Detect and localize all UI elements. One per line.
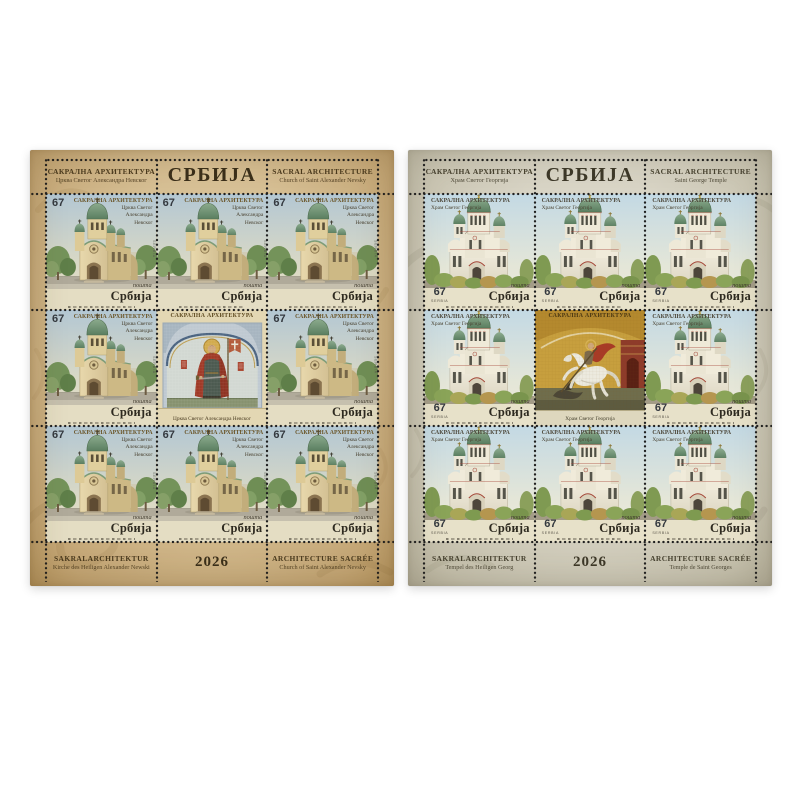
stamp-subject: Црква Светог Александра Невског	[74, 205, 153, 227]
footer-french-subtitle: Temple de Saint Georges	[670, 564, 732, 571]
stamp-microprint	[289, 306, 355, 308]
stamp-series-block: САКРАЛНА АРХИТЕКТУРА Црква Светог Алекса…	[74, 314, 153, 343]
stamp-microprint	[667, 422, 733, 424]
stamp-denomination-block: 67 SERBIA	[431, 287, 448, 303]
stamp-denomination: 67	[431, 519, 448, 530]
stamp-country-block: пошта Србија	[710, 398, 751, 420]
stamp-subject: Храм Светог Георгија	[431, 321, 510, 328]
stamp-subject-line: Црква Светог	[74, 205, 153, 212]
stamp-alexander-nevsky: 67 САКРАЛНА АРХИТЕКТУРА Црква Светог Але…	[267, 310, 378, 426]
stamp-post-label: пошта	[599, 514, 640, 521]
header-serbian-title: САКРАЛНА АРХИТЕКТУРА	[426, 167, 534, 176]
stamp-subject-line: Невског	[184, 220, 263, 227]
stamp-alexander-nevsky: 67 САКРАЛНА АРХИТЕКТУРА Црква Светог Але…	[157, 194, 268, 310]
stamp-subject-line: Невског	[74, 220, 153, 227]
stamp-saint-george-temple: САКРАЛНА АРХИТЕКТУРА Храм Светог Георгиј…	[535, 426, 646, 542]
stamp-subject-line: Црква Светог	[295, 437, 374, 444]
stamp-subject-line: Александра	[74, 444, 153, 451]
stamp-series-title: САКРАЛНА АРХИТЕКТУРА	[295, 314, 374, 320]
stamp-denomination-block: 67 SERBIA	[431, 519, 448, 535]
stamp-saint-george-temple: САКРАЛНА АРХИТЕКТУРА Храм Светог Георгиј…	[424, 426, 535, 542]
stamp-country-latin-vertical: SERBIA	[373, 356, 377, 374]
stamp-post-label: пошта	[221, 514, 262, 521]
footer-french-block: ARCHITECTURE SACRÉE Temple de Saint Geor…	[645, 543, 756, 581]
stamp-alexander-nevsky: 67 САКРАЛНА АРХИТЕКТУРА Црква Светог Але…	[46, 426, 157, 542]
stamp-saint-george-temple: САКРАЛНА АРХИТЕКТУРА Храм Светог Георгиј…	[424, 310, 535, 426]
stamp-microprint	[557, 538, 623, 540]
stamp-denomination-block: 67 SERBIA	[652, 287, 669, 303]
stamp-denomination: 67	[52, 314, 64, 325]
stamp-subject-line: Храм Светог Георгија	[431, 437, 510, 444]
country-name: СРБИЈА	[546, 164, 635, 187]
stamp-denomination: 67	[652, 287, 669, 298]
stamp-subject: Црква Светог Александра Невског	[74, 321, 153, 343]
vignette-caption: Храм Светог Георгија	[535, 416, 646, 422]
stamp-country-name: Србија	[599, 289, 640, 304]
stamp-country-name: Србија	[111, 521, 152, 536]
stamp-country-block: пошта Србија	[599, 514, 640, 536]
stamp-microprint	[446, 422, 512, 424]
stamp-country-block: пошта Србија	[489, 398, 530, 420]
stamp-denomination-block: 67 SERBIA	[652, 403, 669, 419]
mosaic-artwork-alexander-nevsky	[157, 310, 268, 426]
header-english-title: SACRAL ARCHITECTURE	[272, 167, 373, 176]
stamp-denomination-block: 67	[273, 430, 285, 441]
stamp-subject-line: Храм Светог Георгија	[652, 437, 731, 444]
header-english-subtitle: Church of Saint Alexander Nevsky	[279, 177, 366, 184]
header-country-block: СРБИЈА	[535, 159, 646, 192]
stamp-alexander-nevsky: 67 САКРАЛНА АРХИТЕКТУРА Црква Светог Але…	[267, 426, 378, 542]
stamp-alexander-nevsky: 67 САКРАЛНА АРХИТЕКТУРА Црква Светог Але…	[157, 426, 268, 542]
stamp-country-latin: SERBIA	[542, 531, 559, 535]
stamp-series-title: САКРАЛНА АРХИТЕКТУРА	[74, 198, 153, 204]
footer-german-title: SAKRALARCHITEKTUR	[54, 554, 149, 563]
stamp-series-title: САКРАЛНА АРХИТЕКТУРА	[431, 430, 510, 436]
stamp-post-label: пошта	[111, 398, 152, 405]
stamp-series-block: САКРАЛНА АРХИТЕКТУРА Храм Светог Георгиј…	[431, 430, 510, 444]
stamp-country-latin: SERBIA	[431, 531, 448, 535]
stamp-subject-line: Храм Светог Георгија	[431, 321, 510, 328]
header-serbian-block: САКРАЛНА АРХИТЕКТУРА Храм Светог Георгиј…	[424, 159, 535, 192]
stamp-country-block: пошта Србија	[332, 514, 373, 536]
stamp-denomination: 67	[163, 198, 175, 209]
stamp-microprint	[446, 306, 512, 308]
stamp-subject-line: Храм Светог Георгија	[652, 321, 731, 328]
stamp-subject-line: Невског	[295, 336, 374, 343]
stamp-country-latin: SERBIA	[542, 299, 559, 303]
stamp-subject: Црква Светог Александра Невског	[295, 321, 374, 343]
stamp-sheet-saint-george: САКРАЛНА АРХИТЕКТУРА Храм Светог Георгиј…	[408, 150, 772, 586]
stamp-country-latin-vertical: SERBIA	[152, 356, 156, 374]
stamp-country-block: пошта Србија	[710, 282, 751, 304]
stamp-country-latin: SERBIA	[652, 299, 669, 303]
stamp-subject: Црква Светог Александра Невског	[184, 205, 263, 227]
stamp-subject-line: Храм Светог Георгија	[542, 205, 621, 212]
stamp-country-latin-vertical: SERBIA	[152, 472, 156, 490]
stamp-microprint	[667, 538, 733, 540]
stamp-series-block: САКРАЛНА АРХИТЕКТУРА Црква Светог Алекса…	[184, 198, 263, 227]
stamp-denomination-block: 67	[52, 314, 64, 325]
stamp-denomination: 67	[52, 198, 64, 209]
stamp-microprint	[667, 306, 733, 308]
stamp-microprint	[68, 422, 134, 424]
stamp-country-name: Србија	[221, 521, 262, 536]
vignette-series-title: САКРАЛНА АРХИТЕКТУРА	[157, 313, 268, 319]
stamp-denomination: 67	[52, 430, 64, 441]
stamp-country-latin: SERBIA	[652, 415, 669, 419]
stamp-post-label: пошта	[489, 514, 530, 521]
stamp-series-title: САКРАЛНА АРХИТЕКТУРА	[295, 198, 374, 204]
stamp-country-latin: SERBIA	[431, 415, 448, 419]
stamp-subject: Храм Светог Георгија	[542, 437, 621, 444]
header-country-block: СРБИЈА	[157, 159, 268, 192]
country-name: СРБИЈА	[168, 164, 257, 187]
stamp-denomination-block: 67	[163, 430, 175, 441]
stamp-subject-line: Црква Светог	[74, 437, 153, 444]
stamp-country-name: Србија	[489, 289, 530, 304]
stamp-post-label: пошта	[599, 282, 640, 289]
stamp-denomination-block: 67 SERBIA	[652, 519, 669, 535]
stamp-country-name: Србија	[111, 289, 152, 304]
stamp-country-name: Србија	[332, 405, 373, 420]
stamp-denomination-block: 67	[52, 430, 64, 441]
stamp-subject: Храм Светог Георгија	[652, 437, 731, 444]
header-english-subtitle: Saint George Temple	[675, 177, 727, 184]
stamp-country-latin-vertical: SERBIA	[152, 240, 156, 258]
stamp-subject-line: Невског	[74, 452, 153, 459]
sheet-footer: SAKRALARCHITEKTUR Tempel des Heiligen Ge…	[424, 543, 756, 581]
stamp-denomination-block: 67	[273, 314, 285, 325]
stamp-series-title: САКРАЛНА АРХИТЕКТУРА	[431, 314, 510, 320]
stamp-subject: Црква Светог Александра Невског	[184, 437, 263, 459]
stamp-subject: Црква Светог Александра Невског	[74, 437, 153, 459]
stamp-country-latin-vertical: SERBIA	[373, 240, 377, 258]
stamp-country-latin-vertical: SERBIA	[263, 472, 267, 490]
stamp-series-title: САКРАЛНА АРХИТЕКТУРА	[652, 198, 731, 204]
stamp-country-name: Србија	[710, 289, 751, 304]
footer-german-block: SAKRALARCHITEKTUR Kirche des Heiligen Al…	[46, 543, 157, 581]
vignette-caption: Црква Светог Александра Невског	[157, 416, 268, 422]
footer-german-block: SAKRALARCHITEKTUR Tempel des Heiligen Ge…	[424, 543, 535, 581]
stamp-series-title: САКРАЛНА АРХИТЕКТУРА	[74, 314, 153, 320]
stamp-series-title: САКРАЛНА АРХИТЕКТУРА	[184, 198, 263, 204]
stamp-subject-line: Александра	[295, 444, 374, 451]
stamp-country-block: пошта Србија	[489, 282, 530, 304]
stamp-series-block: САКРАЛНА АРХИТЕКТУРА Црква Светог Алекса…	[74, 198, 153, 227]
stamp-alexander-nevsky: 67 САКРАЛНА АРХИТЕКТУРА Црква Светог Але…	[46, 194, 157, 310]
header-english-title: SACRAL ARCHITECTURE	[650, 167, 751, 176]
stamp-series-block: САКРАЛНА АРХИТЕКТУРА Храм Светог Георгиј…	[652, 314, 731, 328]
stamp-post-label: пошта	[111, 282, 152, 289]
stamp-subject-line: Александра	[184, 444, 263, 451]
center-label-alexander-nevsky-mosaic: САКРАЛНА АРХИТЕКТУРА Црква Светог Алекса…	[157, 310, 268, 426]
stamp-post-label: пошта	[332, 514, 373, 521]
stamp-denomination: 67	[273, 314, 285, 325]
stamp-alexander-nevsky: 67 САКРАЛНА АРХИТЕКТУРА Црква Светог Але…	[267, 194, 378, 310]
stamp-series-block: САКРАЛНА АРХИТЕКТУРА Храм Светог Георгиј…	[542, 198, 621, 212]
stamp-country-block: пошта Србија	[332, 398, 373, 420]
stamp-country-block: пошта Србија	[332, 282, 373, 304]
footer-french-title: ARCHITECTURE SACRÉE	[650, 554, 751, 563]
stamp-subject-line: Невског	[295, 452, 374, 459]
stamp-denomination: 67	[163, 430, 175, 441]
stamp-denomination: 67	[273, 198, 285, 209]
stamp-country-name: Србија	[332, 521, 373, 536]
stamp-country-block: пошта Србија	[111, 398, 152, 420]
stamp-series-block: САКРАЛНА АРХИТЕКТУРА Храм Светог Георгиј…	[652, 430, 731, 444]
header-english-block: SACRAL ARCHITECTURE Church of Saint Alex…	[267, 159, 378, 192]
stamp-subject: Храм Светог Георгија	[431, 205, 510, 212]
issue-year: 2026	[573, 554, 607, 571]
issue-year: 2026	[195, 554, 229, 571]
stamp-series-title: САКРАЛНА АРХИТЕКТУРА	[542, 198, 621, 204]
header-serbian-subtitle: Црква Светог Александра Невског	[56, 177, 147, 184]
stamp-country-block: пошта Србија	[221, 514, 262, 536]
stamp-subject-line: Црква Светог	[74, 321, 153, 328]
stamp-country-name: Србија	[710, 521, 751, 536]
stamp-sheet-alexander-nevsky: САКРАЛНА АРХИТЕКТУРА Црква Светог Алекса…	[30, 150, 394, 586]
stamp-subject-line: Александра	[295, 212, 374, 219]
stamp-grid: 67 САКРАЛНА АРХИТЕКТУРА Црква Светог Але…	[46, 194, 378, 542]
stamp-series-title: САКРАЛНА АРХИТЕКТУРА	[652, 314, 731, 320]
image-canvas: САКРАЛНА АРХИТЕКТУРА Црква Светог Алекса…	[0, 0, 800, 800]
footer-french-title: ARCHITECTURE SACRÉE	[272, 554, 373, 563]
footer-french-subtitle: Church of Saint Alexander Nevsky	[279, 564, 366, 571]
sheet-header: САКРАЛНА АРХИТЕКТУРА Храм Светог Георгиј…	[424, 159, 756, 192]
stamp-saint-george-temple: САКРАЛНА АРХИТЕКТУРА Храм Светог Георгиј…	[424, 194, 535, 310]
stamp-country-latin: SERBIA	[652, 531, 669, 535]
stamp-post-label: пошта	[332, 282, 373, 289]
stamp-subject-line: Храм Светог Георгија	[652, 205, 731, 212]
stamp-subject: Црква Светог Александра Невског	[295, 437, 374, 459]
stamp-country-block: пошта Србија	[111, 282, 152, 304]
stamp-denomination: 67	[652, 403, 669, 414]
stamp-denomination: 67	[431, 287, 448, 298]
stamp-post-label: пошта	[221, 282, 262, 289]
stamp-subject-line: Невског	[184, 452, 263, 459]
stamp-subject-line: Александра	[184, 212, 263, 219]
stamp-country-name: Србија	[221, 289, 262, 304]
stamp-series-title: САКРАЛНА АРХИТЕКТУРА	[652, 430, 731, 436]
stamp-country-name: Србија	[710, 405, 751, 420]
stamp-country-name: Србија	[332, 289, 373, 304]
stamp-microprint	[289, 538, 355, 540]
stamp-denomination: 67	[431, 403, 448, 414]
stamp-post-label: пошта	[710, 398, 751, 405]
stamp-denomination: 67	[652, 519, 669, 530]
stamp-subject-line: Храм Светог Георгија	[542, 437, 621, 444]
stamp-series-title: САКРАЛНА АРХИТЕКТУРА	[431, 198, 510, 204]
stamp-series-title: САКРАЛНА АРХИТЕКТУРА	[184, 430, 263, 436]
stamp-series-title: САКРАЛНА АРХИТЕКТУРА	[295, 430, 374, 436]
stamp-post-label: пошта	[710, 282, 751, 289]
stamp-denomination-block: 67	[273, 198, 285, 209]
stamp-series-block: САКРАЛНА АРХИТЕКТУРА Храм Светог Георгиј…	[431, 314, 510, 328]
footer-year-block: 2026	[157, 543, 268, 581]
stamp-microprint	[68, 306, 134, 308]
stamp-denomination: 67	[542, 519, 559, 530]
header-serbian-block: САКРАЛНА АРХИТЕКТУРА Црква Светог Алекса…	[46, 159, 157, 192]
stamp-microprint	[68, 538, 134, 540]
footer-french-block: ARCHITECTURE SACRÉE Church of Saint Alex…	[267, 543, 378, 581]
stamp-country-block: пошта Србија	[599, 282, 640, 304]
stamp-post-label: пошта	[111, 514, 152, 521]
footer-german-title: SAKRALARCHITEKTUR	[432, 554, 527, 563]
stamp-subject-line: Црква Светог	[184, 205, 263, 212]
stamp-country-name: Србија	[489, 405, 530, 420]
stamp-microprint	[179, 538, 245, 540]
stamp-denomination-block: 67	[52, 198, 64, 209]
stamp-denomination-block: 67 SERBIA	[431, 403, 448, 419]
stamp-series-title: САКРАЛНА АРХИТЕКТУРА	[74, 430, 153, 436]
header-english-block: SACRAL ARCHITECTURE Saint George Temple	[645, 159, 756, 192]
stamp-country-latin-vertical: SERBIA	[263, 240, 267, 258]
stamp-subject-line: Александра	[74, 328, 153, 335]
stamp-series-block: САКРАЛНА АРХИТЕКТУРА Црква Светог Алекса…	[74, 430, 153, 459]
stamp-subject-line: Александра	[295, 328, 374, 335]
stamp-series-block: САКРАЛНА АРХИТЕКТУРА Црква Светог Алекса…	[295, 430, 374, 459]
stamp-subject: Храм Светог Георгија	[431, 437, 510, 444]
stamp-subject-line: Невског	[74, 336, 153, 343]
stamp-saint-george-temple: САКРАЛНА АРХИТЕКТУРА Храм Светог Георгиј…	[645, 194, 756, 310]
stamp-subject-line: Црква Светог	[295, 321, 374, 328]
stamp-country-block: пошта Србија	[489, 514, 530, 536]
stamp-subject-line: Александра	[74, 212, 153, 219]
stamp-series-title: САКРАЛНА АРХИТЕКТУРА	[542, 430, 621, 436]
center-label-saint-george-mosaic: САКРАЛНА АРХИТЕКТУРА Храм Светог Георгиј…	[535, 310, 646, 426]
stamp-series-block: САКРАЛНА АРХИТЕКТУРА Црква Светог Алекса…	[184, 430, 263, 459]
stamp-saint-george-temple: САКРАЛНА АРХИТЕКТУРА Храм Светог Георгиј…	[535, 194, 646, 310]
stamp-subject: Црква Светог Александра Невског	[295, 205, 374, 227]
stamp-microprint	[179, 306, 245, 308]
stamp-alexander-nevsky: 67 САКРАЛНА АРХИТЕКТУРА Црква Светог Але…	[46, 310, 157, 426]
stamp-microprint	[289, 422, 355, 424]
stamp-subject-line: Храм Светог Георгија	[431, 205, 510, 212]
stamp-denomination-block: 67 SERBIA	[542, 519, 559, 535]
stamp-subject-line: Црква Светог	[184, 437, 263, 444]
stamp-denomination: 67	[542, 287, 559, 298]
stamp-country-name: Србија	[599, 521, 640, 536]
footer-german-subtitle: Kirche des Heiligen Alexander Newski	[53, 564, 150, 571]
stamp-grid: САКРАЛНА АРХИТЕКТУРА Храм Светог Георгиј…	[424, 194, 756, 542]
stamp-denomination: 67	[273, 430, 285, 441]
footer-german-subtitle: Tempel des Heiligen Georg	[445, 564, 513, 571]
stamp-saint-george-temple: САКРАЛНА АРХИТЕКТУРА Храм Светог Георгиј…	[645, 310, 756, 426]
stamp-country-latin-vertical: SERBIA	[373, 472, 377, 490]
stamp-country-block: пошта Србија	[111, 514, 152, 536]
stamp-series-block: САКРАЛНА АРХИТЕКТУРА Црква Светог Алекса…	[295, 198, 374, 227]
stamp-post-label: пошта	[489, 398, 530, 405]
stamp-post-label: пошта	[489, 282, 530, 289]
stamp-series-block: САКРАЛНА АРХИТЕКТУРА Храм Светог Георгиј…	[652, 198, 731, 212]
stamp-subject: Храм Светог Георгија	[542, 205, 621, 212]
stamp-saint-george-temple: САКРАЛНА АРХИТЕКТУРА Храм Светог Георгиј…	[645, 426, 756, 542]
stamp-post-label: пошта	[332, 398, 373, 405]
header-serbian-title: САКРАЛНА АРХИТЕКТУРА	[48, 167, 156, 176]
stamp-subject: Храм Светог Георгија	[652, 321, 731, 328]
stamp-country-block: пошта Србија	[221, 282, 262, 304]
stamp-series-block: САКРАЛНА АРХИТЕКТУРА Храм Светог Георгиј…	[542, 430, 621, 444]
stamp-country-block: пошта Србија	[710, 514, 751, 536]
sheet-footer: SAKRALARCHITEKTUR Kirche des Heiligen Al…	[46, 543, 378, 581]
stamp-country-name: Србија	[111, 405, 152, 420]
sheet-header: САКРАЛНА АРХИТЕКТУРА Црква Светог Алекса…	[46, 159, 378, 192]
stamp-subject-line: Невског	[295, 220, 374, 227]
stamp-denomination-block: 67 SERBIA	[542, 287, 559, 303]
stamp-post-label: пошта	[710, 514, 751, 521]
vignette-series-title: САКРАЛНА АРХИТЕКТУРА	[535, 313, 646, 319]
stamp-denomination-block: 67	[163, 198, 175, 209]
stamp-microprint	[446, 538, 512, 540]
stamp-subject: Храм Светог Георгија	[652, 205, 731, 212]
stamp-subject-line: Црква Светог	[295, 205, 374, 212]
stamp-series-block: САКРАЛНА АРХИТЕКТУРА Црква Светог Алекса…	[295, 314, 374, 343]
stamp-series-block: САКРАЛНА АРХИТЕКТУРА Храм Светог Георгиј…	[431, 198, 510, 212]
footer-year-block: 2026	[535, 543, 646, 581]
stamp-country-name: Србија	[489, 521, 530, 536]
mosaic-artwork-saint-george	[535, 310, 646, 426]
header-serbian-subtitle: Храм Светог Георгија	[450, 177, 508, 184]
stamp-microprint	[557, 306, 623, 308]
stamp-country-latin: SERBIA	[431, 299, 448, 303]
